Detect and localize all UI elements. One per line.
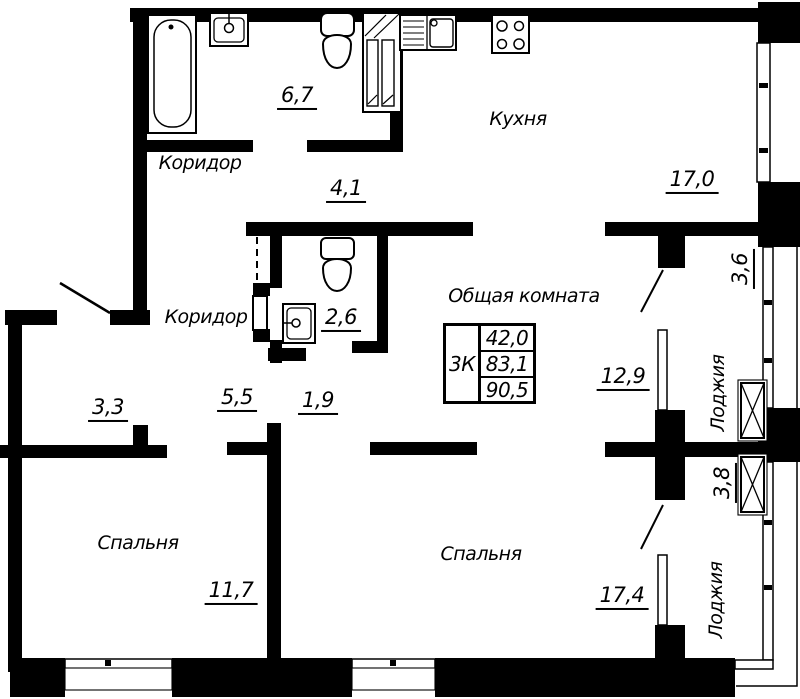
loggia-corner-glazing: [735, 660, 773, 669]
toilet-icon: [321, 238, 354, 291]
area-label-bedroom-left: 11,7: [205, 579, 258, 605]
area-label-bathroom: 6,7: [277, 84, 317, 110]
wall-sink-icon: [210, 13, 248, 46]
shaft-cross-icon: [738, 380, 767, 441]
toilet-icon: [321, 13, 354, 68]
area-label-corridor-a: 5,5: [217, 386, 257, 412]
area-cell: 83,1: [481, 350, 533, 376]
kitchen-window: [757, 43, 770, 182]
floor-plan: Коридор 6,7 Кухня 17,0 4,1 Общая комната…: [0, 0, 800, 699]
floor-plan-drawing: [0, 0, 800, 699]
kitchen-sink-icon: [400, 15, 456, 50]
area-label-corridor-b: 1,9: [298, 389, 338, 415]
area-label-hall: 4,1: [326, 177, 366, 203]
bathtub-icon: [148, 15, 196, 133]
wc-door-leaf-icon: [253, 296, 267, 330]
area-label-bedroom-right: 17,4: [596, 584, 649, 610]
window-bay-right: [352, 668, 435, 690]
apartment-info-table: 3К 42,0 83,1 90,5: [443, 323, 536, 404]
room-label-common-room: Общая комната: [448, 287, 599, 307]
apartment-type-cell: 3К: [446, 326, 481, 402]
room-label-bedroom-left: Спальня: [97, 534, 178, 554]
area-label-closet: 3,3: [88, 396, 128, 422]
area-label-loggia-top: 3,6: [729, 249, 755, 289]
loggia-bottom-door-swing-icon: [641, 505, 663, 549]
shaft-cross-icon: [738, 454, 767, 515]
living-loggia-window: [658, 330, 667, 410]
stove-icon: [492, 15, 529, 53]
doors-group: [60, 237, 663, 549]
room-label-bedroom-right: Спальня: [440, 545, 521, 565]
window-bay-left: [65, 668, 172, 690]
area-label-loggia-bottom: 3,8: [711, 463, 737, 503]
room-label-corridor-top: Коридор: [159, 154, 242, 174]
room-label-kitchen: Кухня: [489, 110, 546, 130]
room-label-loggia-bottom: Лоджия: [707, 562, 727, 639]
loggia-top-door-swing-icon: [641, 270, 663, 312]
area-label-wc: 2,6: [321, 306, 361, 332]
entry-door-swing-icon: [60, 283, 110, 313]
room-label-corridor-mid: Коридор: [165, 308, 248, 328]
area-label-living: 12,9: [597, 365, 650, 391]
bedroom-loggia-window: [658, 555, 667, 625]
living-area-cell: 42,0: [481, 326, 533, 350]
total-area-cell: 90,5: [481, 376, 533, 402]
room-label-loggia-top: Лоджия: [709, 355, 729, 432]
area-label-kitchen: 17,0: [666, 168, 719, 194]
vent-shaft-icon: [363, 13, 401, 112]
wall-sink-icon: [282, 304, 315, 343]
